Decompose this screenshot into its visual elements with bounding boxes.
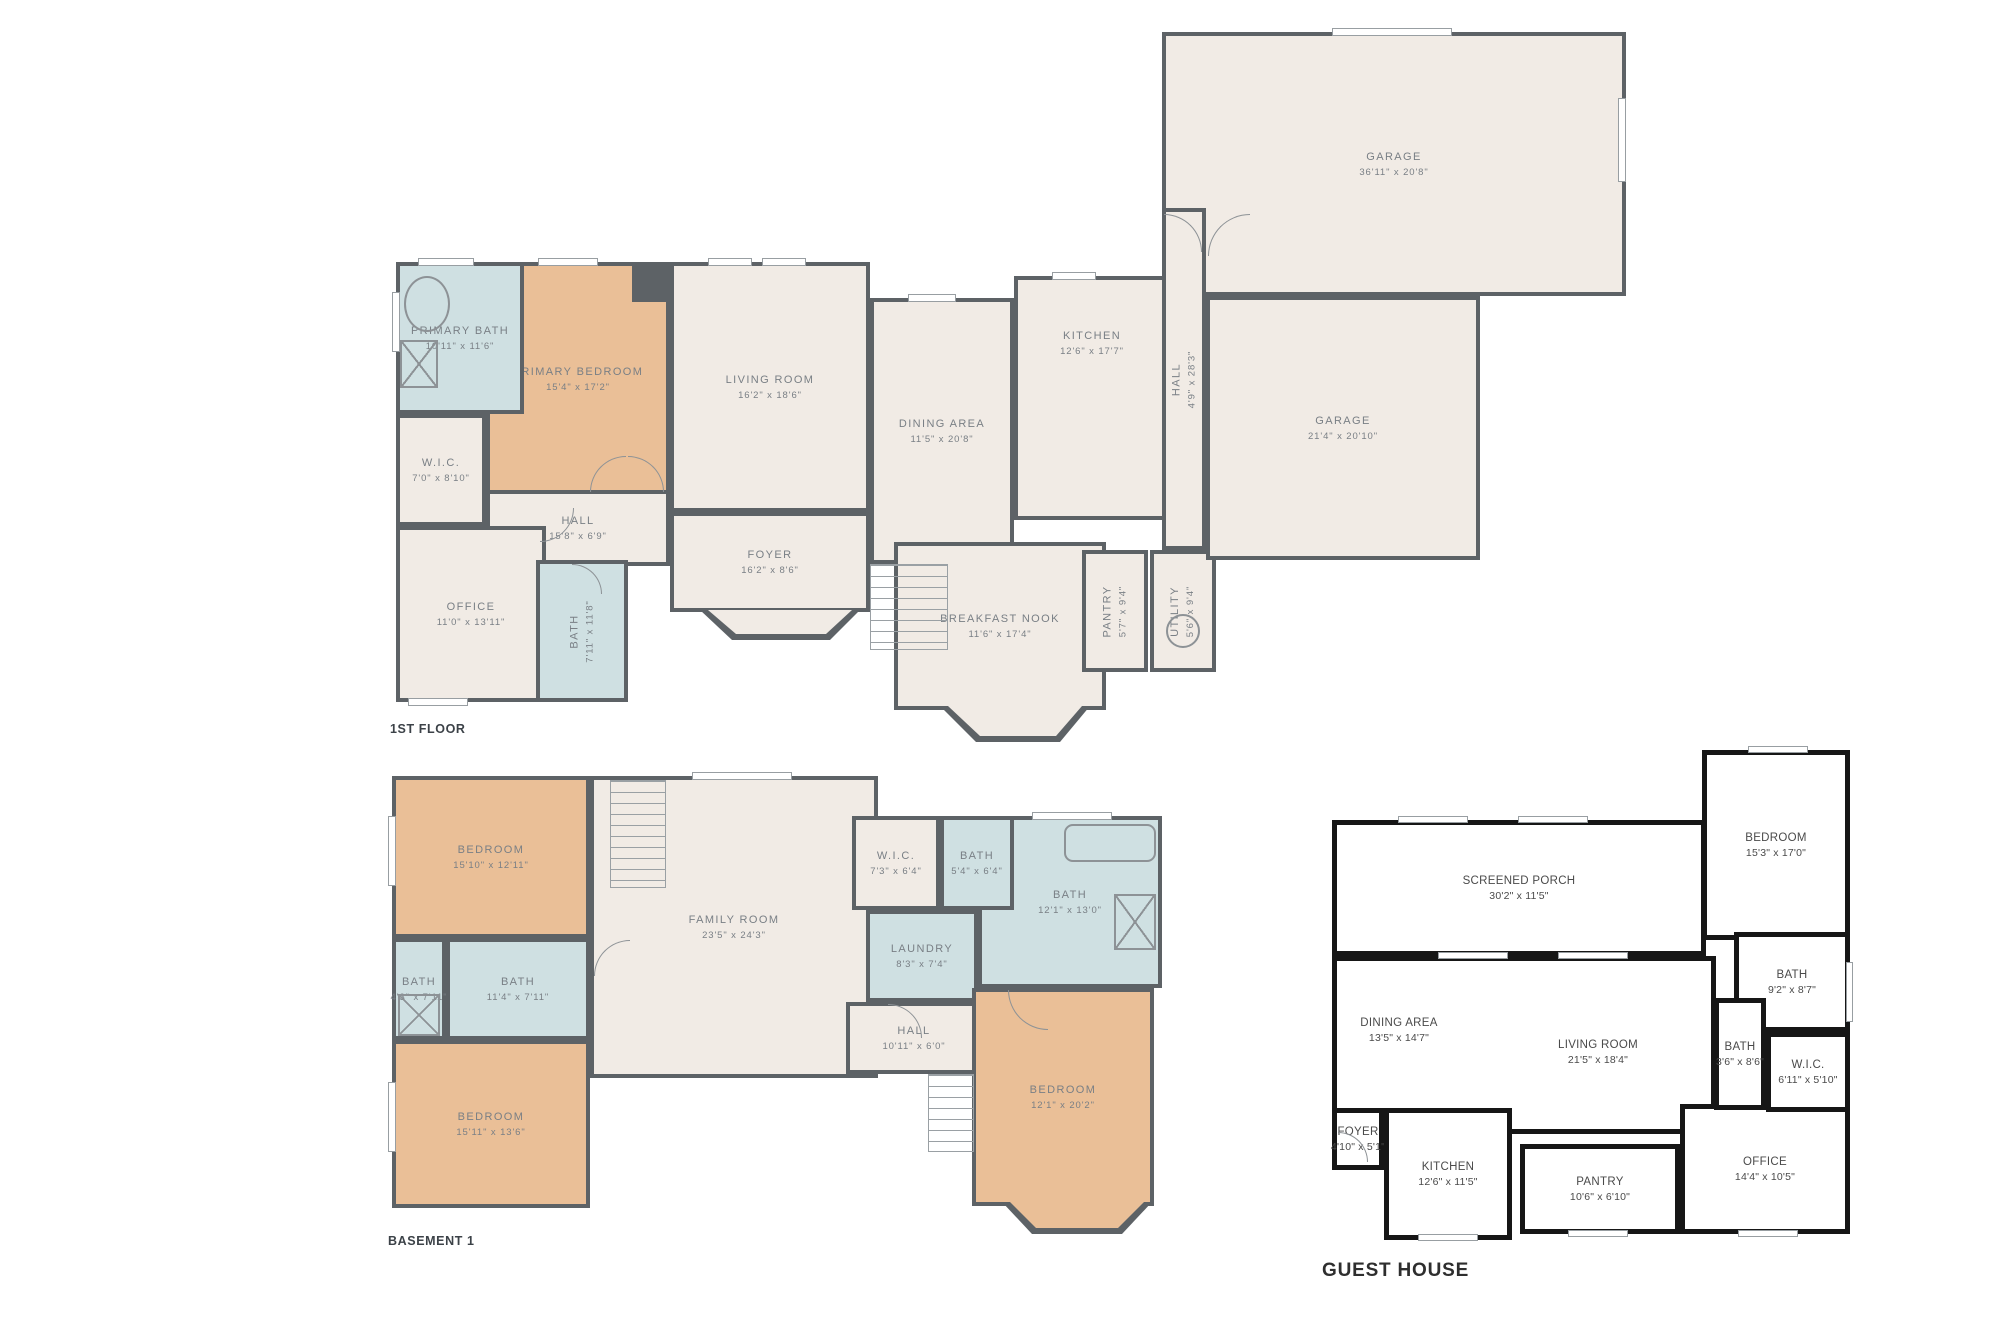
room-hall-1-9: HALL10'11" x 6'0" — [846, 1002, 982, 1074]
room-name: LIVING ROOM — [726, 374, 815, 386]
room-dimensions: 12'1" x 13'0" — [1038, 905, 1102, 916]
room-name: OFFICE — [1735, 1156, 1795, 1168]
room-dimensions: 11'5" x 20'8" — [899, 434, 985, 445]
bathtub-icon — [404, 276, 450, 332]
room-name: BREAKFAST NOOK — [940, 613, 1060, 625]
room-office-0-4: OFFICE11'0" x 13'11" — [396, 526, 546, 702]
wall-notch-icon — [632, 262, 670, 302]
room-name: HALL — [1171, 350, 1183, 408]
room-name: BEDROOM — [453, 844, 528, 856]
room-w-i-c-2-11: W.I.C.6'11" x 5'10" — [1766, 1032, 1850, 1112]
room-dimensions: 3'6" x 8'6" — [1716, 1056, 1764, 1068]
room-name: OFFICE — [437, 601, 506, 613]
floorplan-canvas: PRIMARY BEDROOM15'4" x 17'2"PRIMARY BATH… — [0, 0, 1999, 1323]
room-dimensions: 14'4" x 10'5" — [1735, 1171, 1795, 1183]
room-dimensions: 10'11" x 6'0" — [882, 1041, 945, 1052]
room-name: SCREENED PORCH — [1463, 875, 1576, 887]
room-name: DINING AREA — [899, 418, 985, 430]
room-dimensions: 11'0" x 13'11" — [437, 617, 506, 628]
room-kitchen-2-5: KITCHEN12'6" x 11'5" — [1384, 1108, 1512, 1240]
room-dimensions: 6'11" x 5'10" — [1778, 1074, 1837, 1086]
window-icon — [388, 816, 396, 886]
room-name: BATH — [487, 976, 549, 988]
room-bath-2-10: BATH3'6" x 8'6" — [1714, 998, 1766, 1110]
room-pantry-2-6: PANTRY10'6" x 6'10" — [1520, 1144, 1680, 1234]
room-dimensions: 15'4" x 17'2" — [513, 382, 644, 393]
room-name: PANTRY — [1570, 1176, 1630, 1188]
room-garage-0-15: GARAGE21'4" x 20'10" — [1206, 296, 1480, 560]
window-icon — [1438, 952, 1508, 959]
window-icon — [1618, 98, 1626, 182]
room-dimensions: 16'2" x 18'6" — [726, 390, 815, 401]
window-icon — [762, 258, 806, 266]
room-name: BATH — [1038, 889, 1102, 901]
room-hall-0-14: HALL4'9" x 28'3" — [1162, 208, 1206, 550]
shower-stall-icon — [400, 340, 438, 388]
room-name: W.I.C. — [412, 457, 470, 469]
room-dimensions: 12'6" x 11'5" — [1418, 1176, 1477, 1188]
room-name: BATH — [1716, 1041, 1764, 1053]
window-icon — [1558, 952, 1628, 959]
window-icon — [388, 1082, 396, 1152]
room-dining-area-0-8: DINING AREA11'5" x 20'8" — [870, 298, 1014, 564]
window-icon — [408, 698, 468, 706]
room-dimensions: 12'1" x 20'2" — [1030, 1100, 1097, 1111]
window-icon — [1332, 28, 1452, 36]
window-icon — [1748, 746, 1808, 753]
room-dimensions: 11'6" x 17'4" — [940, 629, 1060, 640]
room-name: BEDROOM — [1030, 1084, 1097, 1096]
room-name: LAUNDRY — [891, 943, 953, 955]
shower-stall-icon — [1114, 894, 1156, 950]
room-w-i-c-1-6: W.I.C.7'3" x 6'4" — [852, 816, 940, 910]
window-icon — [692, 772, 792, 780]
window-icon — [1518, 816, 1588, 823]
plan-title-guest-house: GUEST HOUSE — [1322, 1260, 1469, 1282]
room-dimensions: 7'3" x 6'4" — [870, 866, 921, 877]
plan-title-first-floor: 1ST FLOOR — [390, 722, 466, 736]
room-dimensions: 36'11" x 20'8" — [1359, 167, 1428, 178]
room-name: KITCHEN — [1060, 330, 1124, 342]
staircase-up-icon — [610, 780, 666, 888]
floorplan-basement-1: BEDROOM15'10" x 12'11"BATH4'3" x 7'11"BA… — [388, 772, 1178, 1254]
window-icon — [392, 292, 400, 352]
window-icon — [1568, 1230, 1628, 1237]
room-name: GARAGE — [1359, 151, 1428, 163]
room-name: FAMILY ROOM — [689, 914, 780, 926]
room-name: W.I.C. — [870, 850, 921, 862]
staircase-down-icon — [928, 1074, 974, 1152]
room-name: GARAGE — [1308, 415, 1378, 427]
bathtub-icon — [1064, 824, 1156, 862]
room-dimensions: 23'5" x 24'3" — [689, 930, 780, 941]
window-icon — [538, 258, 598, 266]
room-dimensions: 12'6" x 17'7" — [1060, 346, 1124, 357]
room-bedroom-1-0: BEDROOM15'10" x 12'11" — [392, 776, 590, 938]
floorplan-guest-house: SCREENED PORCH30'2" x 11'5"DINING AREA13… — [1318, 742, 1883, 1290]
room-living-room-2-3: LIVING ROOM21'5" x 18'4" — [1542, 1032, 1654, 1072]
room-name: PRIMARY BEDROOM — [513, 366, 644, 378]
plan-title-basement-1: BASEMENT 1 — [388, 1234, 475, 1248]
room-dimensions: 15'3" x 17'0" — [1745, 847, 1807, 859]
room-dimensions: 9'2" x 8'7" — [1768, 984, 1816, 996]
room-dimensions: 15'10" x 12'11" — [453, 860, 528, 871]
room-dimensions: 13'5" x 14'7" — [1360, 1032, 1437, 1044]
room-dimensions: 21'4" x 20'10" — [1308, 431, 1378, 442]
window-icon — [418, 258, 474, 266]
window-icon — [1738, 1230, 1798, 1237]
room-dimensions: 15'11" x 13'6" — [456, 1127, 525, 1138]
room-name: BATH — [951, 850, 1002, 862]
window-icon — [908, 294, 956, 302]
room-garage-0-13: GARAGE36'11" x 20'8" — [1162, 32, 1626, 296]
staircase-icon — [870, 564, 948, 650]
room-kitchen-0-9: KITCHEN12'6" x 17'7" — [1014, 276, 1170, 520]
window-icon — [1032, 812, 1112, 820]
room-dimensions: 30'2" x 11'5" — [1463, 890, 1576, 902]
room-bedroom-1-3: BEDROOM15'11" x 13'6" — [392, 1040, 590, 1208]
room-name: BATH — [569, 600, 581, 662]
room-name: BATH — [391, 976, 448, 988]
window-icon — [1052, 272, 1096, 280]
room-name: PANTRY — [1101, 585, 1113, 637]
room-dimensions: 8'3" x 7'4" — [891, 959, 953, 970]
room-utility-0-12: UTILITY5'6" x 9'4" — [1150, 550, 1216, 672]
room-bedroom-2-8: BEDROOM15'3" x 17'0" — [1702, 750, 1850, 940]
room-dimensions: 21'5" x 18'4" — [1558, 1054, 1638, 1066]
room-dimensions: 7'0" x 8'10" — [412, 473, 470, 484]
shower-stall-icon — [398, 994, 440, 1036]
room-dimensions: 7'11" x 11'8" — [585, 600, 596, 662]
room-name: W.I.C. — [1778, 1059, 1837, 1071]
window-icon — [1398, 816, 1468, 823]
room-bath-1-2: BATH11'4" x 7'11" — [446, 938, 590, 1040]
room-name: LIVING ROOM — [1558, 1039, 1638, 1051]
room-name: BEDROOM — [1745, 832, 1807, 844]
floorplan-first-floor: PRIMARY BEDROOM15'4" x 17'2"PRIMARY BATH… — [388, 8, 1633, 756]
room-living-room-0-6: LIVING ROOM16'2" x 18'6" — [670, 262, 870, 512]
room-dimensions: 10'6" x 6'10" — [1570, 1191, 1630, 1203]
room-name: BEDROOM — [456, 1111, 525, 1123]
room-foyer-0-7: FOYER16'2" x 8'6" — [670, 512, 870, 612]
room-laundry-1-8: LAUNDRY8'3" x 7'4" — [866, 910, 978, 1002]
room-w-i-c-0-2: W.I.C.7'0" x 8'10" — [396, 414, 486, 526]
room-name: KITCHEN — [1418, 1161, 1477, 1173]
room-bedroom-1-10: BEDROOM12'1" x 20'2" — [972, 988, 1154, 1206]
room-name: DINING AREA — [1360, 1017, 1437, 1029]
room-name: BATH — [1768, 969, 1816, 981]
room-dimensions: 16'2" x 8'6" — [741, 565, 799, 576]
room-dimensions: 5'7" x 9'4" — [1117, 585, 1128, 637]
room-dining-area-2-2: DINING AREA13'5" x 14'7" — [1344, 1010, 1454, 1050]
room-name: FOYER — [741, 549, 799, 561]
room-screened-porch-2-0: SCREENED PORCH30'2" x 11'5" — [1332, 820, 1706, 956]
room-dimensions: 4'9" x 28'3" — [1187, 350, 1198, 408]
water-heater-icon — [1166, 614, 1200, 648]
room-dimensions: 11'4" x 7'11" — [487, 992, 549, 1003]
window-icon — [708, 258, 752, 266]
room-office-2-7: OFFICE14'4" x 10'5" — [1680, 1104, 1850, 1234]
window-icon — [1418, 1234, 1478, 1241]
room-pantry-0-11: PANTRY5'7" x 9'4" — [1082, 550, 1148, 672]
room-bath-1-7: BATH5'4" x 6'4" — [940, 816, 1014, 910]
window-icon — [1846, 962, 1853, 1022]
room-dimensions: 5'4" x 6'4" — [951, 866, 1002, 877]
